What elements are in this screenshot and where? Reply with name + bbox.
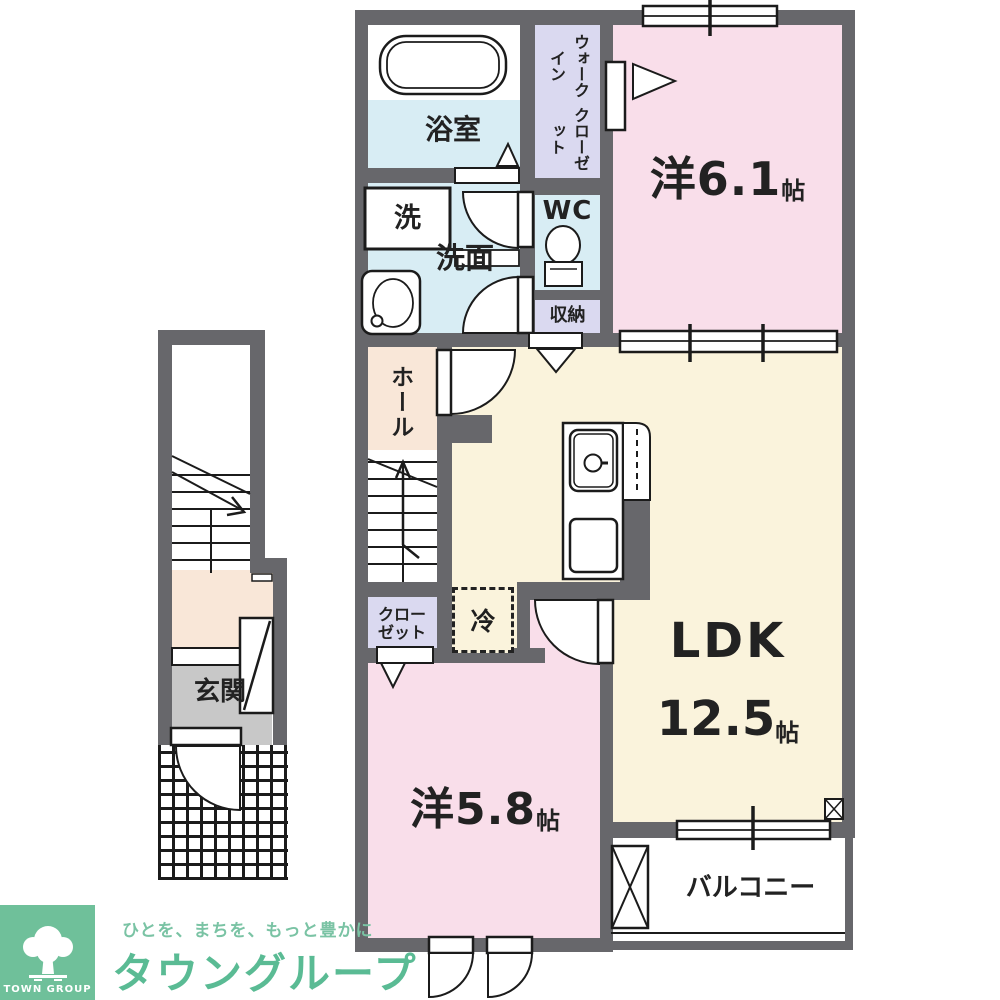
western-room1-label: 洋6.1帖: [613, 148, 842, 210]
closet-door: [377, 647, 433, 687]
western-room1-name: 洋6.1: [650, 154, 782, 205]
ldk-label-name: LDK: [613, 610, 843, 672]
porch-door: [171, 728, 241, 810]
fridge-label: 冷: [470, 602, 495, 638]
tree-icon: [9, 922, 87, 984]
floorplan-linework: [0, 0, 1000, 1000]
wic-door: [606, 62, 675, 130]
sink-icon: [362, 271, 420, 334]
hall-label: ホール: [384, 352, 414, 452]
kitchen-icon: [563, 423, 650, 579]
window-partition-west1-ldk: [620, 324, 837, 362]
wc-label: WC: [535, 196, 600, 226]
bathroom-label: 浴室: [408, 114, 498, 146]
entrance-label: 玄関: [175, 676, 265, 708]
western-room2-label: 洋5.8帖: [375, 780, 595, 840]
annex-vent: [252, 574, 272, 581]
washroom-label: 洗面: [420, 242, 510, 276]
ldk-label-size: 12.5帖: [613, 686, 843, 752]
west2-door: [535, 600, 613, 664]
logo-brand-jp: タウングループ: [112, 940, 417, 1000]
casement-windows: [429, 937, 532, 997]
washroom-door: [463, 277, 533, 333]
washer-label: 洗: [365, 190, 450, 248]
floorplan-canvas: 冷 浴室 洗 洗面 WC ウォークインクローゼット 収納 洋6.1帖 ホール ク…: [0, 0, 1000, 1000]
window-top: [643, 0, 777, 36]
walk-in-closet-label: ウォークインクローゼット: [543, 30, 593, 175]
stairs-main: [368, 459, 437, 582]
logo-tagline: ひとを、まちを、もっと豊かに: [122, 916, 374, 941]
western-room2-name: 洋5.8: [410, 786, 536, 834]
window-ldk-balcony: [677, 806, 830, 850]
corner-xbox-icon: [825, 799, 843, 819]
balcony-xbox-icon: [612, 846, 648, 928]
wc-door: [463, 192, 533, 248]
toilet-icon: [545, 226, 582, 286]
closet-label: クローゼット: [370, 601, 434, 647]
stairs-annex: [172, 456, 250, 573]
hall-ldk-door: [437, 350, 515, 415]
genkan-step: [172, 648, 240, 665]
ldk-unit: 帖: [775, 720, 799, 752]
storage-label: 収納: [535, 304, 600, 328]
western-room2-unit: 帖: [536, 808, 560, 840]
balcony-label: バルコニー: [663, 872, 838, 904]
town-group-logo: TOWN GROUP: [0, 905, 95, 1000]
fridge-space: 冷: [452, 587, 514, 653]
bathtub-icon: [380, 36, 506, 94]
storage-door: [529, 333, 582, 372]
logo-brand-en: TOWN GROUP: [3, 984, 91, 1000]
ldk-size: 12.5: [657, 693, 775, 746]
western-room1-unit: 帖: [781, 178, 805, 210]
bathroom-door: [455, 144, 519, 183]
